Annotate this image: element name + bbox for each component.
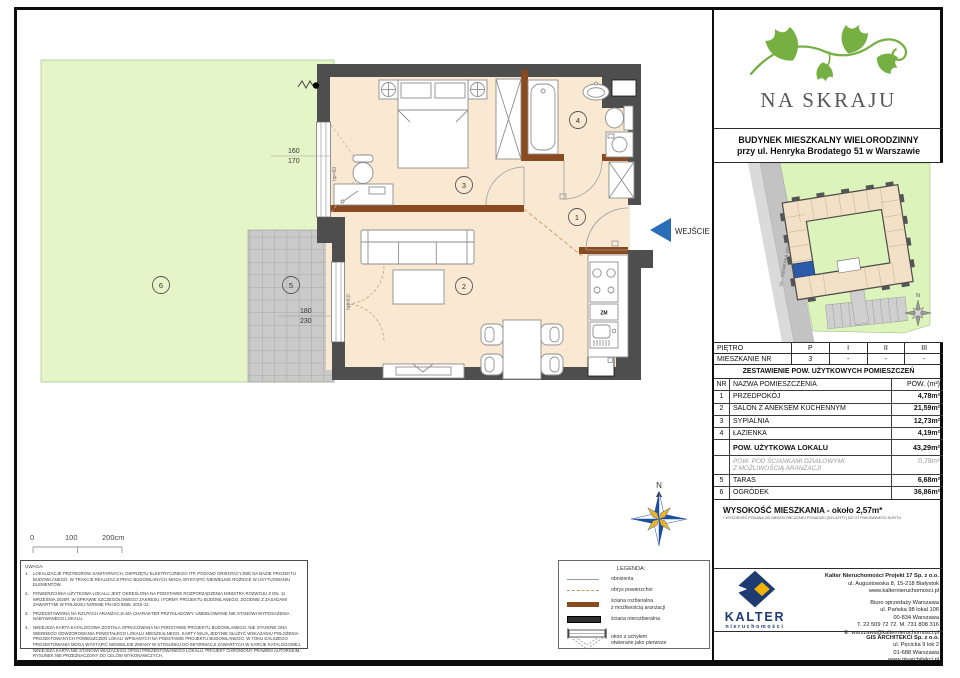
entrance-label: WEJŚCIE [675,227,710,236]
table-row: 3SYPIALNIA12,73m² [714,416,943,428]
svg-text:170: 170 [288,158,300,165]
legend-row-removable-wall: ściana rozbieralnaz możliwością aranżacj… [565,598,705,610]
table-row: 6OGRÓDEK36,86m² [714,487,943,499]
table-row: 1PRZEDPOKÓJ4,78m² [714,391,943,403]
notes-box: UWAGA: 1. LOKALIZACJE PRZYBORÓW SANITARN… [20,560,308,649]
floor-value: P [792,343,830,354]
note-item: 2. POWIERZCHNIA UŻYTKOWA LOKALU JEST OKR… [25,591,302,608]
area-outline-dash-icon [567,590,599,591]
room-number-3: 3 [462,181,466,190]
ivy-vine-icon [736,25,922,87]
floor-value: II [868,343,906,354]
table-row: 4ŁAZIENKA4,19m² [714,428,943,440]
building-title-line2: przy ul. Henryka Brodatego 51 w Warszawi… [714,146,943,156]
tilt-window-icon [567,628,607,652]
area-table-header: NR NAZWA POMIESZCZENIA POW. (m²) [714,379,943,391]
svg-text:160: 160 [288,148,300,155]
svg-text:200cm: 200cm [102,533,125,542]
legend-row-fixed-wall: ściana nierozbieralna [565,616,705,623]
info-pane: NA SKRAJU BUDYNEK MIESZKALNY WIELORODZIN… [714,10,943,665]
brand-name: NA SKRAJU [760,88,896,113]
unit-value: 3 [792,354,830,364]
developer-contact-block: Kalter Nieruchomości Projekt 17 Sp. z o.… [796,569,943,631]
entrance-arrow-icon [650,218,671,242]
shaft-niche [612,80,636,96]
floor-label: PIĘTRO [714,343,792,354]
unit-value: - [905,354,943,364]
note-item: 4. NINIEJSZA KARTA KATALOGOWA ZOSTAŁA OP… [25,625,302,658]
developer-website[interactable]: www.kalternieruchomosci.pl [796,588,939,596]
table-row: 5TARAS6,68m² [714,475,943,487]
kalter-logo-sub: nieruchomości [726,624,785,631]
svg-text:180: 180 [300,308,312,315]
dishwasher-label: ZM [600,311,607,317]
svg-text:100: 100 [65,533,78,542]
highlighted-unit [793,261,815,278]
room-number-2: 2 [462,282,466,291]
partition-area-row: POW. POD ŚCIANKAMI DZIAŁOWYMIZ MOŻLIWOŚC… [714,456,943,475]
note-item: 1. LOKALIZACJE PRZYBORÓW SANITARNYCH, OS… [25,571,302,588]
fixed-wall-icon [567,616,601,623]
legend-row-obrys: obrys powierzchni [565,587,705,593]
legend-box: LEGENDA: obniżenia obrys powierzchni ści… [558,560,710,649]
svg-text:hp=0,0: hp=0,0 [346,294,352,310]
floor-value: III [905,343,943,354]
unit-label: MIESZKANIE NR [714,354,792,364]
unit-value: - [868,354,906,364]
area-table: NR NAZWA POMIESZCZENIA POW. (m²) 1PRZEDP… [714,379,943,500]
brand-logo-section: NA SKRAJU [714,10,943,129]
svg-text:hp=60: hp=60 [332,167,338,181]
compass-north-label: N [656,481,662,490]
kalter-logo: KALTER nieruchomości [714,569,796,631]
catalog-card-page: ZM 160 170 hp=60 180 230 hp=0,0 1 2 3 4 … [0,0,960,678]
legend-row-obnizenia: obniżenia [565,576,705,582]
floor-value: I [830,343,868,354]
room-number-5: 5 [289,281,293,290]
total-area-row: POW. UŻYTKOWA LOKALU43,29m² [714,440,943,456]
site-compass-north-label: N [916,293,920,299]
bottom-niche [588,356,614,376]
floor-unit-table: PIĘTRO P I II III MIESZKANIE NR 3 - - - [714,343,943,365]
terrace-area [248,230,334,382]
room-number-6: 6 [159,281,163,290]
site-map-section: UL. HENRYKA BRODATEGO [714,163,943,343]
unit-value: - [830,354,868,364]
architect-contact-block: GIS ARCHITEKCI Sp. z o.o. ul. Pęcicka 9 … [714,632,943,665]
svg-text:230: 230 [300,318,312,325]
building-title-line1: BUDYNEK MIESZKALNY WIELORODZINNY [714,135,943,145]
area-table-title: ZESTAWIENIE POW. UŻYTKOWYCH POMIESZCZEŃ [714,365,943,379]
removable-wall-icon [567,602,599,607]
svg-text:0: 0 [30,533,34,542]
floor-plan-drawing: ZM 160 170 hp=60 180 230 hp=0,0 1 2 3 4 … [16,10,710,558]
legend-row-window: okno z uchyłemotwierane jako pierwsze [565,628,705,652]
room-number-1: 1 [575,213,579,222]
height-block: WYSOKOŚĆ MIESZKANIA - około 2,57m* * WYS… [714,500,943,521]
note-item: 3. PRZEDSTAWIONA NA RZUTACH ARANŻACJA MA… [25,611,302,622]
table-row: 2SALON Z ANEKSEM KUCHENNYM21,59m² [714,404,943,416]
room-number-4: 4 [576,116,580,125]
legend-title: LEGENDA: [617,566,705,572]
compass-rose: N [631,481,687,546]
height-note: * WYSOKOŚĆ PODANA OD NIEWYKOŃCZONEJ POSA… [723,516,939,520]
architect-website[interactable]: www.gisarchitekci.pl [714,657,939,665]
height-label: WYSOKOŚĆ MIESZKANIA - około 2,57m* [723,506,939,515]
kalter-diamond-icon [730,569,780,609]
kalter-logo-name: KALTER [725,611,786,624]
notes-title: UWAGA: [25,564,302,569]
building-title-section: BUDYNEK MIESZKALNY WIELORODZINNY przy ul… [714,129,943,163]
lowered-ceiling-line-icon [567,579,599,580]
entrance-marker: WEJŚCIE [650,218,710,242]
office-phone: T. 22 509 72 72. M. 731 808 316 [796,622,939,630]
footer: KALTER nieruchomości Kalter Nieruchomośc… [714,568,943,665]
site-map-drawing: UL. HENRYKA BRODATEGO [714,163,943,342]
scale-bar: 0 100 200cm [30,533,125,553]
